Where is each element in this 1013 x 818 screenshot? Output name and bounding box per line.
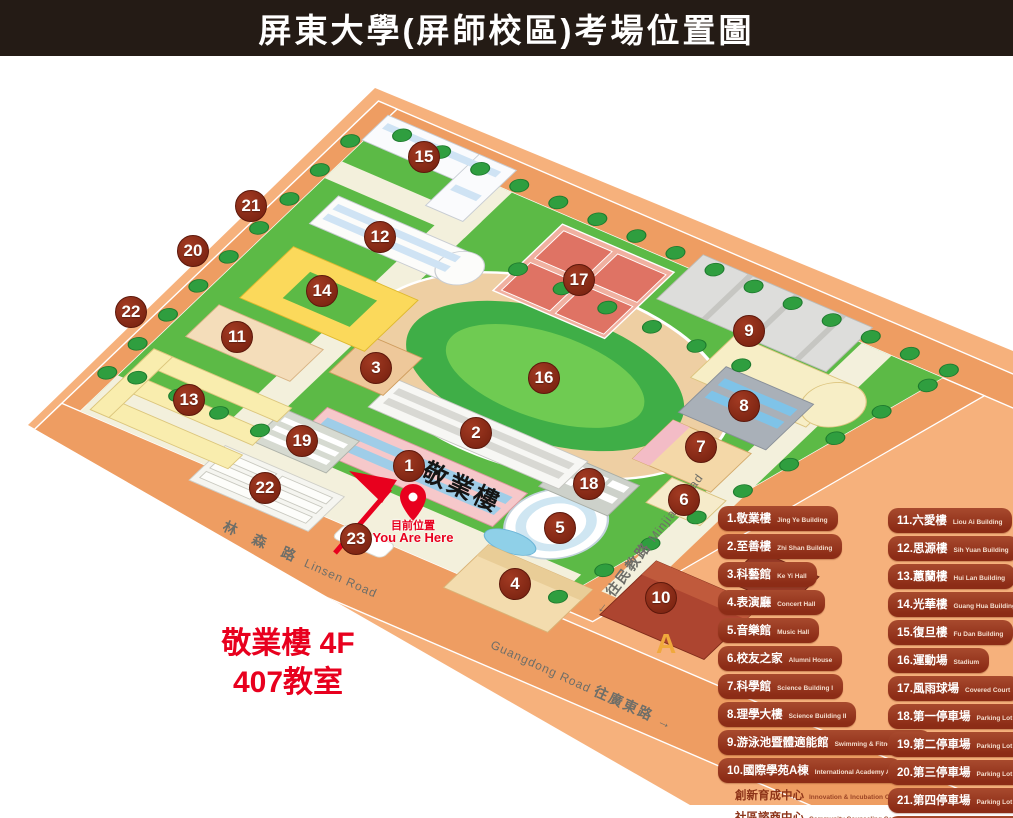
title-bar: 屏東大學(屏師校區)考場位置圖 — [0, 0, 1013, 56]
legend-item-6: 6.校友之家Alumni House — [718, 646, 842, 671]
map-marker-18: 18 — [573, 468, 605, 500]
map-marker-16: 16 — [528, 362, 560, 394]
map-marker-2: 2 — [460, 417, 492, 449]
legend-subitem: 社區諮商中心Community Counseling Center — [735, 808, 904, 818]
legend-item-10: 10.國際學苑A棟International Academy A — [718, 758, 901, 783]
legend-column-right: 11.六愛樓Liou Ai Building12.思源樓Sih Yuan Bui… — [888, 508, 1013, 818]
legend-item-12: 12.思源樓Sih Yuan Building — [888, 536, 1013, 561]
map-marker-8: 8 — [728, 390, 760, 422]
map-marker-9: 9 — [733, 315, 765, 347]
exam-room-number: 407教室 — [178, 663, 398, 702]
map-marker-20: 20 — [177, 235, 209, 267]
map-marker-7: 7 — [685, 431, 717, 463]
map-marker-22: 22 — [115, 296, 147, 328]
legend-item-4: 4.表演廳Concert Hall — [718, 590, 825, 615]
map-marker-10: 10 — [645, 582, 677, 614]
legend-item-7: 7.科學館Science Building I — [718, 674, 843, 699]
map-marker-6: 6 — [668, 484, 700, 516]
legend-item-18: 18.第一停車場Parking Lot I — [888, 704, 1013, 729]
legend-item-15: 15.復旦樓Fu Dan Building — [888, 620, 1013, 645]
legend-item-16: 16.運動場Stadium — [888, 648, 989, 673]
map-marker-12: 12 — [364, 221, 396, 253]
map-marker-11: 11 — [221, 321, 253, 353]
map-marker-4: 4 — [499, 568, 531, 600]
legend-item-8: 8.理學大樓Science Building II — [718, 702, 856, 727]
map-marker-19: 19 — [286, 425, 318, 457]
legend-item-19: 19.第二停車場Parking Lot II — [888, 732, 1013, 757]
map-marker-14: 14 — [306, 275, 338, 307]
legend-item-1: 1.敬業樓Jing Ye Building — [718, 506, 838, 531]
map-marker-13: 13 — [173, 384, 205, 416]
legend-item-5: 5.音樂館Music Hall — [718, 618, 819, 643]
legend-subitem: 創新育成中心Innovation & Incubation Center — [735, 786, 905, 804]
academy-a-map-label: A — [656, 628, 676, 660]
map-marker-22: 22 — [249, 472, 281, 504]
exam-room-annotation: 敬業樓 4F 407教室 — [178, 624, 398, 702]
map-marker-17: 17 — [563, 264, 595, 296]
map-marker-15: 15 — [408, 141, 440, 173]
legend-item-11: 11.六愛樓Liou Ai Building — [888, 508, 1012, 533]
map-marker-21: 21 — [235, 190, 267, 222]
legend-item-2: 2.至善樓Zhi Shan Building — [718, 534, 842, 559]
map-marker-5: 5 — [544, 512, 576, 544]
map-marker-3: 3 — [360, 352, 392, 384]
legend-item-17: 17.風雨球場Covered Court — [888, 676, 1013, 701]
legend-item-20: 20.第三停車場Parking Lot III — [888, 760, 1013, 785]
exam-room-building: 敬業樓 4F — [178, 624, 398, 663]
campus-map-page: 屏東大學(屏師校區)考場位置圖 — [0, 0, 1013, 818]
legend-item-21: 21.第四停車場Parking Lot IV — [888, 788, 1013, 813]
legend-item-13: 13.蕙蘭樓Hui Lan Building — [888, 564, 1013, 589]
legend-item-14: 14.光華樓Guang Hua Building — [888, 592, 1013, 617]
page-title: 屏東大學(屏師校區)考場位置圖 — [259, 4, 755, 52]
legend-item-3: 3.科藝館Ke Yi Hall — [718, 562, 817, 587]
you-are-here-en: You Are Here — [358, 530, 468, 545]
